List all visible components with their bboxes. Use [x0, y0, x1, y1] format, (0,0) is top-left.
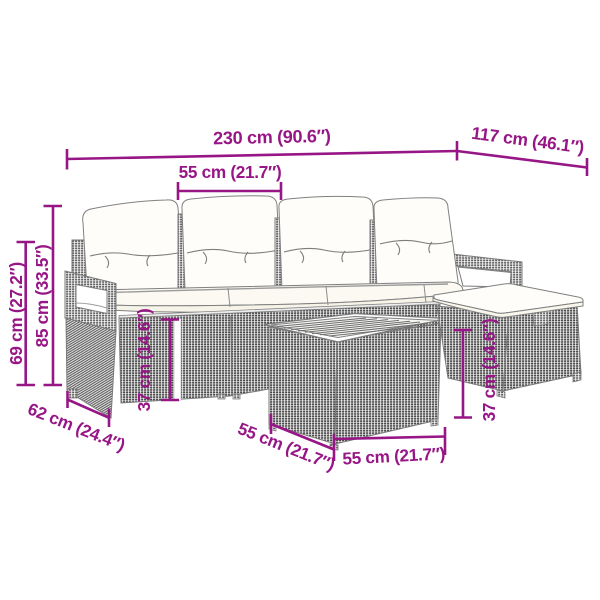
svg-text:85 cm (33.5″): 85 cm (33.5″)	[32, 245, 52, 348]
svg-text:69 cm (27.2″): 69 cm (27.2″)	[6, 262, 26, 365]
svg-text:37 cm (14.6″): 37 cm (14.6″)	[134, 309, 154, 412]
svg-text:230 cm (90.6″): 230 cm (90.6″)	[213, 126, 331, 148]
svg-text:37 cm (14.6″): 37 cm (14.6″)	[479, 319, 499, 422]
svg-text:55 cm (21.7″): 55 cm (21.7″)	[179, 162, 282, 182]
